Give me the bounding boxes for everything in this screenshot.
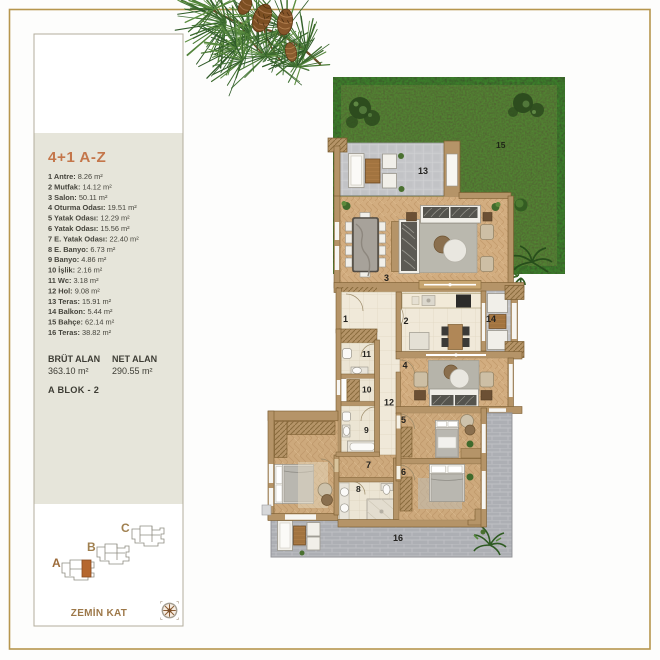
svg-text:NET ALAN: NET ALAN (112, 354, 157, 364)
svg-text:15: 15 (496, 140, 506, 150)
svg-text:B: B (87, 540, 96, 554)
svg-text:290.55 m²: 290.55 m² (112, 366, 153, 376)
svg-text:1: 1 (343, 314, 348, 324)
svg-text:BRÜT ALAN: BRÜT ALAN (48, 354, 100, 364)
svg-text:A: A (52, 556, 61, 570)
svg-text:9 Banyo: 4.86 m²: 9 Banyo: 4.86 m² (48, 255, 107, 264)
svg-text:13: 13 (418, 166, 428, 176)
svg-text:1 Antre: 8.26 m²: 1 Antre: 8.26 m² (48, 172, 103, 181)
svg-text:7: 7 (366, 460, 371, 470)
svg-text:6: 6 (401, 467, 406, 477)
svg-text:5: 5 (401, 415, 406, 425)
svg-text:12: 12 (384, 398, 394, 408)
svg-text:12 Hol: 9.08 m²: 12 Hol: 9.08 m² (48, 286, 100, 295)
svg-text:4 Oturma Odası: 19.51 m²: 4 Oturma Odası: 19.51 m² (48, 203, 137, 212)
svg-text:9: 9 (364, 425, 369, 435)
svg-text:16 Teras: 38.82 m²: 16 Teras: 38.82 m² (48, 328, 112, 337)
svg-text:3 Salon: 50.11 m²: 3 Salon: 50.11 m² (48, 193, 108, 202)
svg-text:3: 3 (384, 273, 389, 283)
svg-text:C: C (121, 521, 130, 535)
svg-text:14: 14 (486, 314, 496, 324)
svg-text:13 Teras: 15.91 m²: 13 Teras: 15.91 m² (48, 297, 112, 306)
svg-text:14 Balkon: 5.44 m²: 14 Balkon: 5.44 m² (48, 307, 113, 316)
svg-text:16: 16 (393, 533, 403, 543)
svg-text:15 Bahçe: 62.14 m²: 15 Bahçe: 62.14 m² (48, 318, 115, 327)
svg-text:A BLOK - 2: A BLOK - 2 (48, 385, 99, 395)
svg-text:5 Yatak Odası: 12.29 m²: 5 Yatak Odası: 12.29 m² (48, 214, 130, 223)
svg-text:4+1 A-Z: 4+1 A-Z (48, 149, 106, 166)
svg-text:11 Wc: 3.18 m²: 11 Wc: 3.18 m² (48, 276, 99, 285)
svg-text:10 İşlik: 2.16 m²: 10 İşlik: 2.16 m² (48, 266, 103, 275)
svg-text:8: 8 (356, 484, 361, 494)
svg-text:4: 4 (403, 361, 408, 371)
svg-text:363.10 m²: 363.10 m² (48, 366, 89, 376)
svg-text:10: 10 (362, 385, 372, 395)
svg-text:8 E. Banyo: 6.73 m²: 8 E. Banyo: 6.73 m² (48, 245, 116, 254)
svg-text:2: 2 (404, 316, 409, 326)
svg-text:ZEMİN KAT: ZEMİN KAT (71, 606, 127, 619)
svg-text:6 Yatak Odası: 15.56 m²: 6 Yatak Odası: 15.56 m² (48, 224, 130, 233)
svg-text:11: 11 (362, 349, 371, 359)
svg-text:2 Mutfak: 14.12 m²: 2 Mutfak: 14.12 m² (48, 182, 112, 191)
svg-text:7 E. Yatak Odası: 22.40 m²: 7 E. Yatak Odası: 22.40 m² (48, 234, 139, 243)
